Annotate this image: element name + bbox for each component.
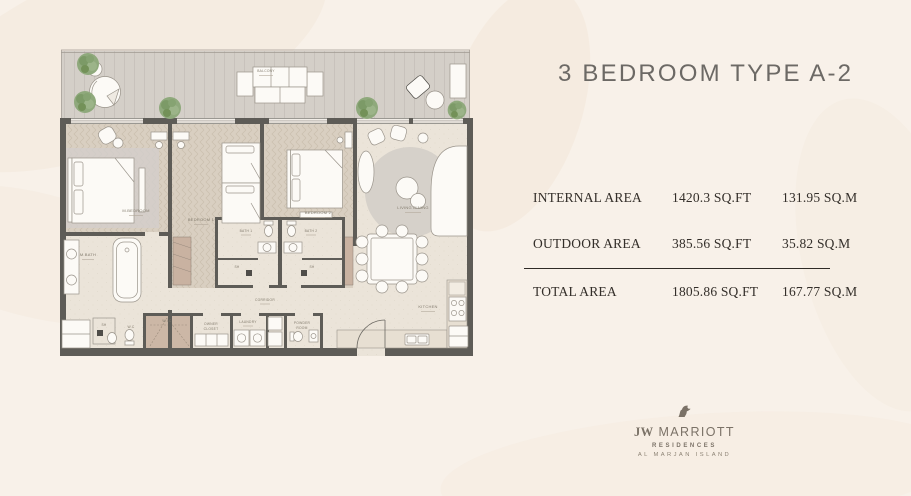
brand-name-jw: JW	[634, 425, 654, 439]
label-shower-master: SH	[101, 323, 106, 327]
label-balcony: BALCONY	[257, 69, 275, 73]
brand-location: AL MARJAN ISLAND	[604, 452, 765, 458]
page-title: 3 BEDROOM TYPE A-2	[558, 60, 853, 88]
label-shower-1: SH	[234, 265, 239, 269]
label-shower-2: SH	[309, 265, 314, 269]
outdoor-area-sqft: 385.56 SQ.FT	[672, 236, 782, 252]
total-area-sqft: 1805.86 SQ.FT	[672, 284, 782, 300]
label-bath-2: BATH 2	[305, 229, 318, 233]
label-master-bath: M.BATH	[80, 252, 96, 257]
label-owner-closet-1: OWNER	[204, 322, 218, 326]
area-row-internal: INTERNAL AREA 1420.3 SQ.FT 131.95 SQ.M	[533, 190, 853, 206]
label-owner-closet-2: CLOSET	[204, 327, 219, 331]
total-area-label: TOTAL AREA	[533, 284, 672, 300]
floorplan: BALCONY M.BEDROOM BEDROOM 1 BEDROOM 2 LI…	[55, 42, 480, 364]
label-master-bedroom: M.BEDROOM	[122, 208, 149, 213]
label-walk-in-closet: W.I.C	[162, 319, 172, 323]
brand-logo: JW MARRIOTT RESIDENCES AL MARJAN ISLAND	[604, 404, 765, 458]
internal-area-sqm: 131.95 SQ.M	[782, 190, 857, 206]
griffin-icon	[604, 404, 765, 424]
stove	[449, 297, 466, 321]
brand-residences: RESIDENCES	[604, 443, 765, 449]
label-wc: W.C	[128, 325, 135, 329]
label-bedroom-1: BEDROOM 1	[188, 217, 215, 222]
area-row-total: TOTAL AREA 1805.86 SQ.FT 167.77 SQ.M	[533, 284, 853, 300]
label-bedroom-2: BEDROOM 2	[305, 210, 332, 215]
internal-area-sqft: 1420.3 SQ.FT	[672, 190, 782, 206]
area-row-outdoor: OUTDOOR AREA 385.56 SQ.FT 35.82 SQ.M	[533, 236, 853, 252]
label-laundry: LAUNDRY	[239, 320, 257, 324]
label-kitchen: KITCHEN	[418, 304, 437, 309]
label-corridor: CORRIDOR	[255, 298, 275, 302]
label-bath-1: BATH 1	[240, 229, 253, 233]
outdoor-area-sqm: 35.82 SQ.M	[782, 236, 853, 252]
label-powder-room-2: ROOM	[296, 326, 307, 330]
label-powder-room-1: POWDER	[294, 321, 311, 325]
brand-name-marriott: MARRIOTT	[658, 425, 734, 439]
internal-area-label: INTERNAL AREA	[533, 190, 672, 206]
outdoor-area-label: OUTDOOR AREA	[533, 236, 672, 252]
brand-name: JW MARRIOTT	[604, 425, 765, 440]
bedroom1-furniture	[222, 143, 260, 223]
kitchen-sink	[405, 334, 429, 345]
total-area-sqm: 167.77 SQ.M	[782, 284, 857, 300]
balcony-area	[61, 50, 470, 120]
screenshot-root: BALCONY M.BEDROOM BEDROOM 1 BEDROOM 2 LI…	[0, 0, 911, 496]
label-living-dining: LIVING DINING	[397, 205, 428, 210]
floorplan-svg: BALCONY M.BEDROOM BEDROOM 1 BEDROOM 2 LI…	[55, 42, 480, 364]
fridge	[449, 326, 468, 347]
total-divider-line	[524, 268, 830, 269]
